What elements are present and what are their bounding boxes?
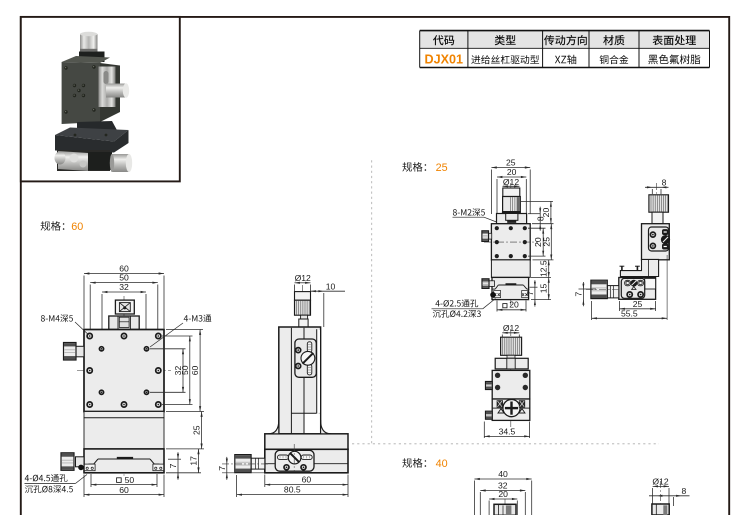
svg-text:80.5: 80.5 — [284, 485, 301, 495]
svg-text:Ø12: Ø12 — [503, 323, 519, 333]
svg-text:25: 25 — [633, 299, 643, 309]
svg-text:40: 40 — [498, 469, 508, 479]
svg-text:20: 20 — [498, 489, 508, 499]
svg-text:40: 40 — [436, 458, 448, 470]
svg-text:25: 25 — [506, 158, 516, 168]
svg-text:55.5: 55.5 — [621, 308, 638, 318]
svg-text:25: 25 — [192, 425, 202, 435]
svg-text:50: 50 — [125, 475, 135, 485]
svg-text:Ø12: Ø12 — [295, 273, 311, 283]
svg-text:50: 50 — [180, 365, 190, 375]
svg-text:60: 60 — [71, 221, 83, 233]
svg-text:Ø12: Ø12 — [503, 177, 519, 187]
svg-text:20: 20 — [541, 208, 551, 218]
svg-text:25: 25 — [436, 162, 448, 174]
svg-text:17: 17 — [189, 456, 199, 466]
svg-text:8: 8 — [682, 486, 687, 496]
svg-text:60: 60 — [190, 366, 200, 376]
svg-text:7: 7 — [525, 291, 535, 296]
svg-text:15: 15 — [539, 284, 549, 294]
svg-text:32: 32 — [119, 282, 129, 292]
svg-text:60: 60 — [302, 475, 312, 485]
svg-text:10: 10 — [326, 281, 336, 291]
svg-text:34.5: 34.5 — [499, 427, 516, 437]
svg-text:20: 20 — [509, 300, 519, 310]
svg-text:7: 7 — [573, 292, 583, 297]
svg-text:25: 25 — [541, 237, 551, 247]
svg-text:8: 8 — [662, 177, 667, 187]
svg-text:7: 7 — [217, 466, 227, 471]
svg-text:7: 7 — [168, 463, 178, 468]
svg-text:12.5: 12.5 — [539, 260, 549, 277]
svg-text:DJX01: DJX01 — [425, 53, 464, 67]
svg-text:20: 20 — [507, 167, 517, 177]
svg-text:60: 60 — [119, 485, 129, 495]
svg-text:8: 8 — [536, 216, 546, 221]
